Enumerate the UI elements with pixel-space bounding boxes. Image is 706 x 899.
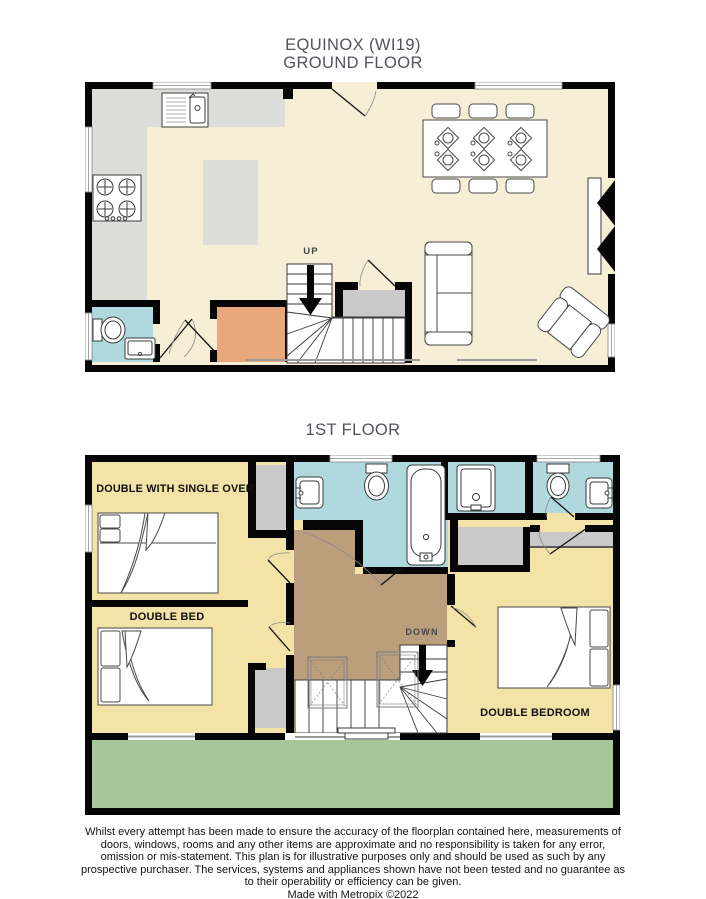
- entrance-hall-floor: [217, 307, 285, 362]
- dining-chair: [506, 104, 534, 118]
- first-floor-plan: DOWN: [85, 455, 620, 815]
- plan-title: EQUINOX (WI19) GROUND FLOOR: [0, 36, 706, 72]
- floorplan-page: EQUINOX (WI19) GROUND FLOOR: [0, 0, 706, 899]
- wc-toilet: [93, 317, 125, 343]
- up-label: UP: [303, 246, 319, 257]
- bed-double: [98, 628, 212, 705]
- dining-chair: [506, 179, 534, 193]
- kitchen-island: [203, 160, 258, 245]
- first-floor-heading: 1ST FLOOR: [0, 421, 706, 440]
- disclaimer-text: Whilst every attempt has been made to en…: [80, 826, 626, 889]
- terrace: [92, 740, 613, 808]
- window: [153, 82, 211, 89]
- folding-door: [588, 178, 615, 274]
- bathtub: [407, 465, 445, 565]
- window: [475, 82, 562, 89]
- wardrobe: [256, 465, 286, 530]
- ensuite-toilet: [547, 464, 569, 499]
- wardrobe: [255, 668, 288, 728]
- dining-chair: [469, 179, 497, 193]
- window: [85, 505, 92, 552]
- bathroom-toilet: [365, 464, 389, 500]
- plan-title-line1: EQUINOX (WI19): [0, 36, 706, 54]
- bed-double-bedroom: [498, 607, 610, 688]
- wc-basin: [125, 338, 155, 359]
- plan-title-line2: GROUND FLOOR: [0, 54, 706, 72]
- terrace-step: [345, 733, 388, 739]
- shower: [457, 465, 495, 511]
- window: [85, 313, 92, 360]
- window: [85, 127, 92, 192]
- sofa: [425, 242, 472, 345]
- window: [608, 324, 615, 357]
- front-door-opening: [332, 82, 377, 89]
- room-label-double-with-single: DOUBLE WITH SINGLE OVER: [96, 483, 254, 495]
- disclaimer: Whilst every attempt has been made to en…: [80, 826, 626, 899]
- wardrobe: [458, 527, 523, 565]
- dining-chair: [432, 179, 460, 193]
- kitchen-sink: [162, 93, 208, 127]
- understairs-cupboard: [343, 290, 405, 317]
- room-label-double-bed: DOUBLE BED: [130, 611, 205, 623]
- bed-double-with-single: [98, 513, 218, 593]
- hob: [93, 175, 141, 221]
- dining-table: [423, 104, 547, 193]
- down-label: DOWN: [405, 627, 438, 637]
- dining-chair: [469, 104, 497, 118]
- window: [537, 455, 600, 462]
- room-label-double-bedroom: DOUBLE BEDROOM: [480, 707, 590, 719]
- terrace-step: [338, 728, 395, 733]
- ground-floor-plan: UP: [85, 82, 615, 372]
- window: [330, 455, 392, 462]
- bathroom-basin: [296, 477, 323, 508]
- credit-text: Made with Metropix ©2022: [80, 889, 626, 899]
- dining-chair: [432, 104, 460, 118]
- ensuite-basin: [586, 478, 613, 508]
- window: [613, 685, 620, 730]
